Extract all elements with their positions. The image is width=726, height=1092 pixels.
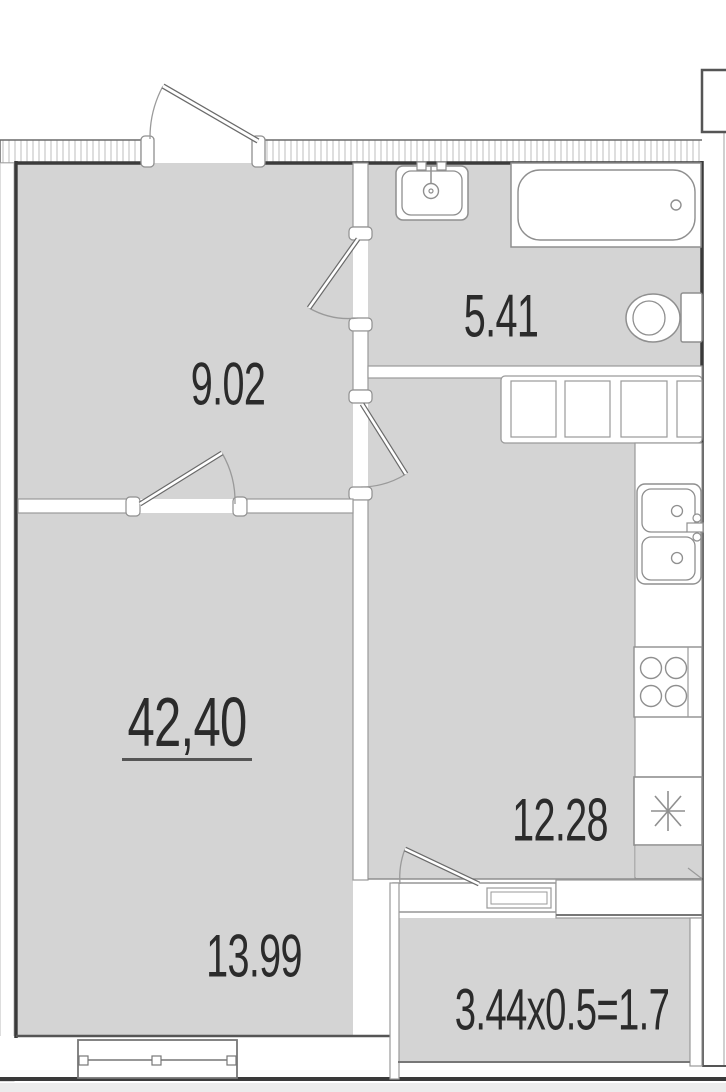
floor-plan-drawing <box>0 0 726 1092</box>
top-wall-right <box>258 140 726 163</box>
snowflake-icon <box>651 791 685 831</box>
ventilation-shaft <box>702 70 726 132</box>
refrigerator <box>634 777 702 845</box>
balcony-right-wall <box>690 918 702 1066</box>
window <box>78 1040 237 1078</box>
left-wall <box>0 163 14 1081</box>
balcony-wall <box>368 879 702 918</box>
kitchen-sink <box>637 484 703 584</box>
washbasin <box>396 162 468 220</box>
kitchen-area-label: 12.28 <box>512 786 608 855</box>
floor-living-room <box>18 513 353 1035</box>
kitchen-window-band <box>556 880 702 918</box>
entrance-door <box>141 86 265 167</box>
total-area-underline <box>122 758 252 761</box>
stove <box>634 647 702 717</box>
living-room-area-label: 13.99 <box>206 922 302 991</box>
toilet <box>626 293 702 342</box>
stove-burner <box>641 658 662 679</box>
stove-burner <box>666 686 687 707</box>
balcony-left-wall <box>390 883 399 1079</box>
balcony-area-label: 3.44x0.5=1.7 <box>455 977 670 1044</box>
bathroom-area-label: 5.41 <box>464 282 538 351</box>
exterior-ground <box>0 1083 726 1092</box>
top-wall-left <box>0 140 147 163</box>
hallway-area-label: 9.02 <box>191 350 265 419</box>
stove-burner <box>666 658 687 679</box>
entrance-door-swing-arc <box>150 86 163 139</box>
total-area-label: 42,40 <box>127 682 246 762</box>
stove-burner <box>641 686 662 707</box>
sink-faucet <box>687 523 703 532</box>
bathtub <box>511 163 701 247</box>
right-wall <box>702 132 726 1065</box>
floor-hallway <box>18 163 353 499</box>
floor-plan: 9.02 5.41 12.28 13.99 42,40 3.44x0.5=1.7 <box>0 0 726 1092</box>
